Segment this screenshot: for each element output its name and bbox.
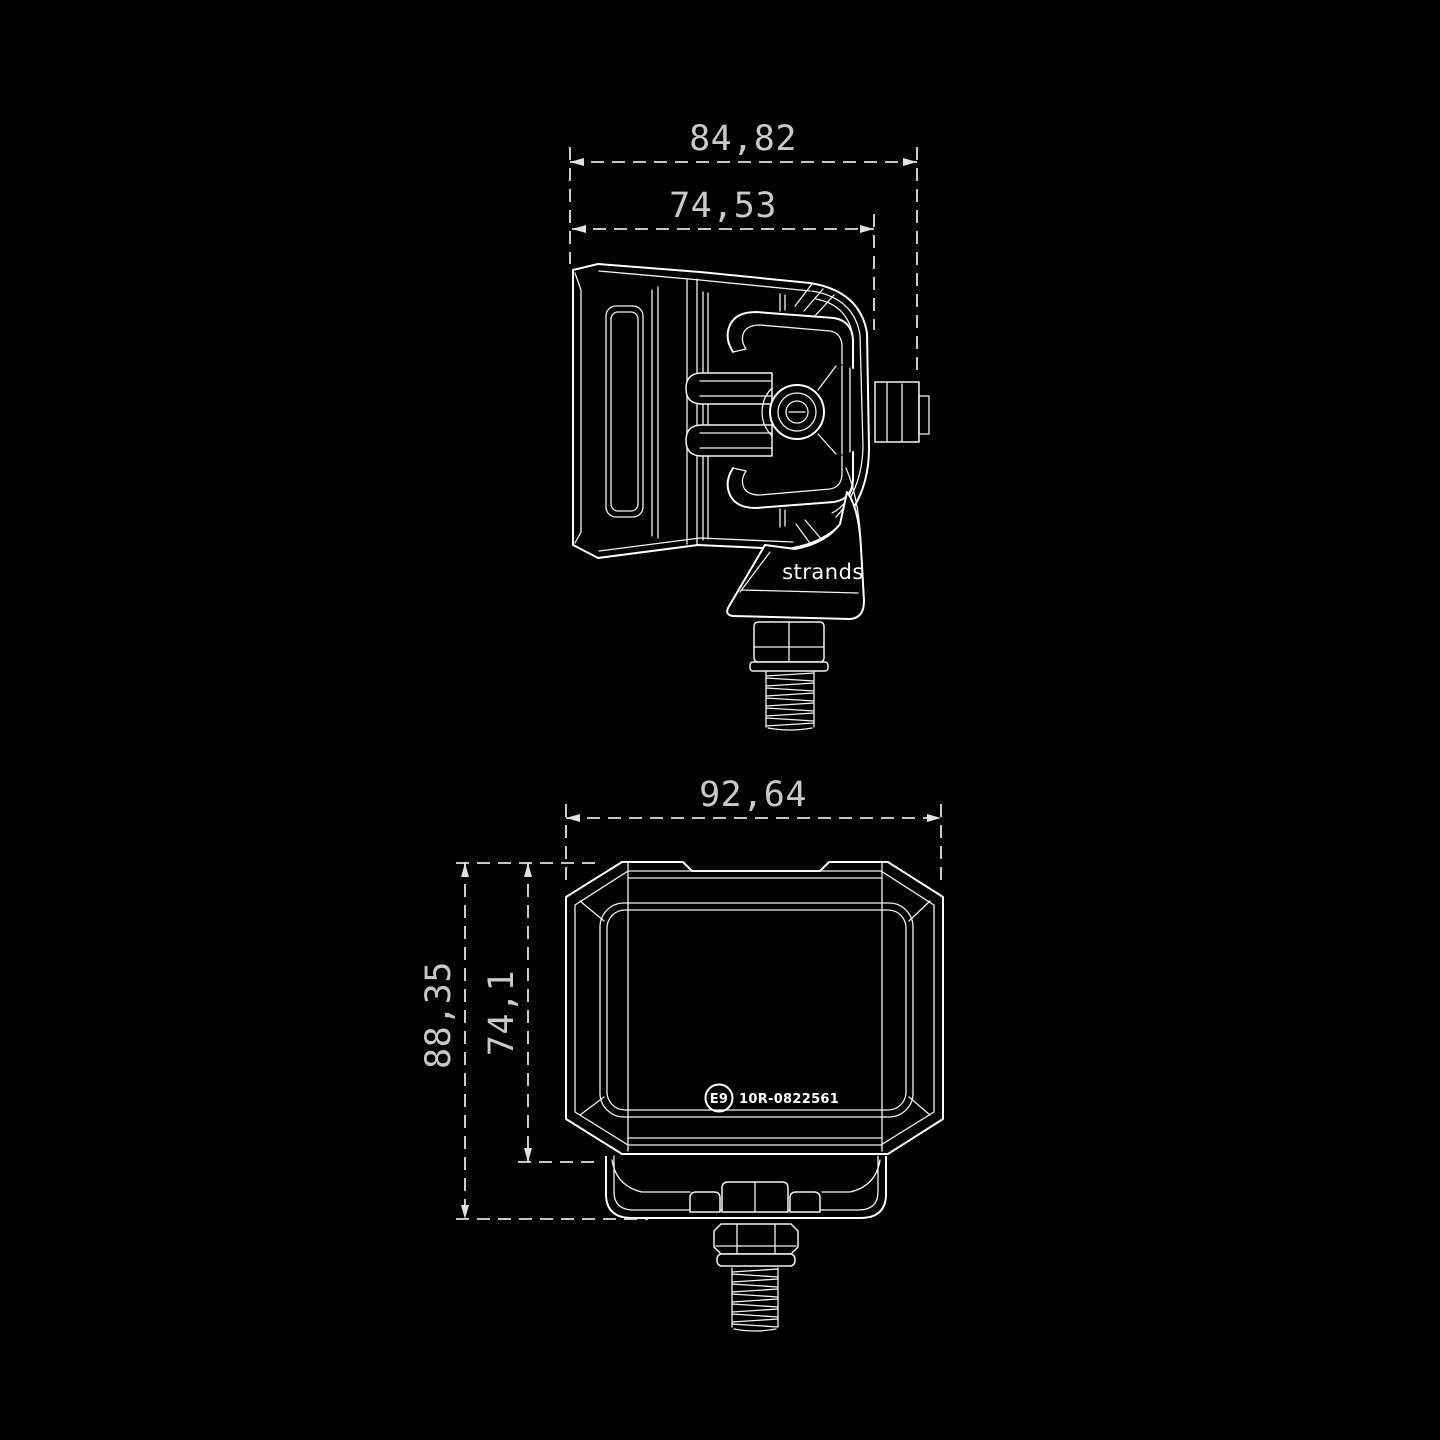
technical-drawing-page: strands E9 10R-0822561 (0, 0, 1440, 1440)
side-view-drawing: strands (573, 264, 929, 730)
dimension-arrow (566, 814, 580, 822)
dimension-arrow (461, 863, 469, 877)
dimension-label-front-overall-height: 88,35 (419, 961, 459, 1069)
side-stud-threads (766, 672, 814, 730)
dimension-label-front-body-height: 74,1 (482, 970, 522, 1056)
side-connector-block (875, 382, 929, 442)
dimension-arrow (524, 1148, 532, 1162)
dimension-arrow (524, 863, 532, 877)
dimension-label-front-overall-width: 92,64 (699, 775, 807, 815)
front-bracket-foot (606, 1156, 886, 1218)
side-mounting-bolt (750, 622, 828, 730)
front-stud-threads (732, 1268, 778, 1331)
dimension-arrow (570, 158, 584, 166)
front-foot-tab-left (690, 1192, 720, 1212)
dimension-arrow (572, 225, 586, 233)
e-mark-code: 10R-0822561 (739, 1092, 839, 1107)
technical-drawing-canvas: strands E9 10R-0822561 (0, 0, 1440, 1440)
front-nut (714, 1224, 798, 1254)
side-washer (750, 662, 828, 671)
brand-logo-text: strands (782, 560, 864, 584)
dimension-arrow (903, 158, 917, 166)
front-mounting-bolt (714, 1224, 798, 1331)
dimension-label-side-lens-width: 74,53 (669, 186, 777, 226)
front-foot-tab-right (790, 1192, 820, 1212)
side-fin-slat-upper (686, 373, 772, 404)
front-view-drawing: E9 10R-0822561 (566, 862, 943, 1331)
dimension-arrow (860, 225, 874, 233)
dimension-arrow (927, 814, 941, 822)
dimension-arrow (461, 1205, 469, 1219)
e-mark-circle-label: E9 (710, 1092, 729, 1107)
side-connector-nub (919, 396, 929, 434)
dimension-label-side-overall-width: 84,82 (689, 119, 797, 159)
side-connector-body (875, 382, 919, 442)
side-fin-slat-lower (686, 425, 772, 456)
front-washer (717, 1254, 795, 1266)
